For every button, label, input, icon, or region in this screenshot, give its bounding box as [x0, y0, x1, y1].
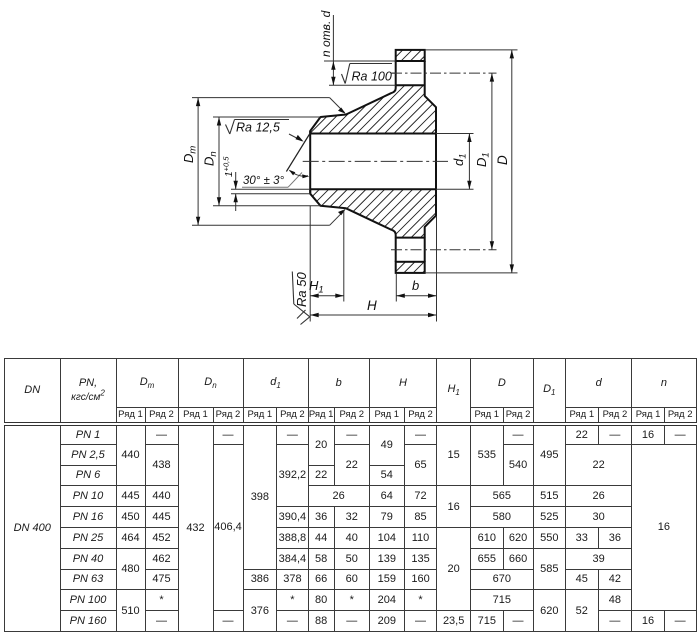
svg-text:b: b	[412, 278, 419, 293]
svg-text:Dn: Dn	[202, 151, 220, 166]
svg-text:1+0,5: 1+0,5	[222, 156, 236, 177]
svg-text:Ra 100: Ra 100	[352, 70, 392, 84]
svg-text:Ra 12,5: Ra 12,5	[236, 121, 280, 135]
svg-text:H: H	[367, 298, 377, 313]
svg-text:Dm: Dm	[181, 146, 199, 163]
svg-text:D: D	[495, 155, 510, 165]
svg-text:D1: D1	[474, 152, 492, 167]
svg-text:30° ± 3°: 30° ± 3°	[243, 175, 284, 187]
svg-text:Ra 50: Ra 50	[294, 272, 309, 307]
svg-text:n отв. d: n отв. d	[319, 10, 333, 57]
svg-text:H1: H1	[309, 278, 324, 296]
svg-text:d1: d1	[451, 153, 469, 166]
